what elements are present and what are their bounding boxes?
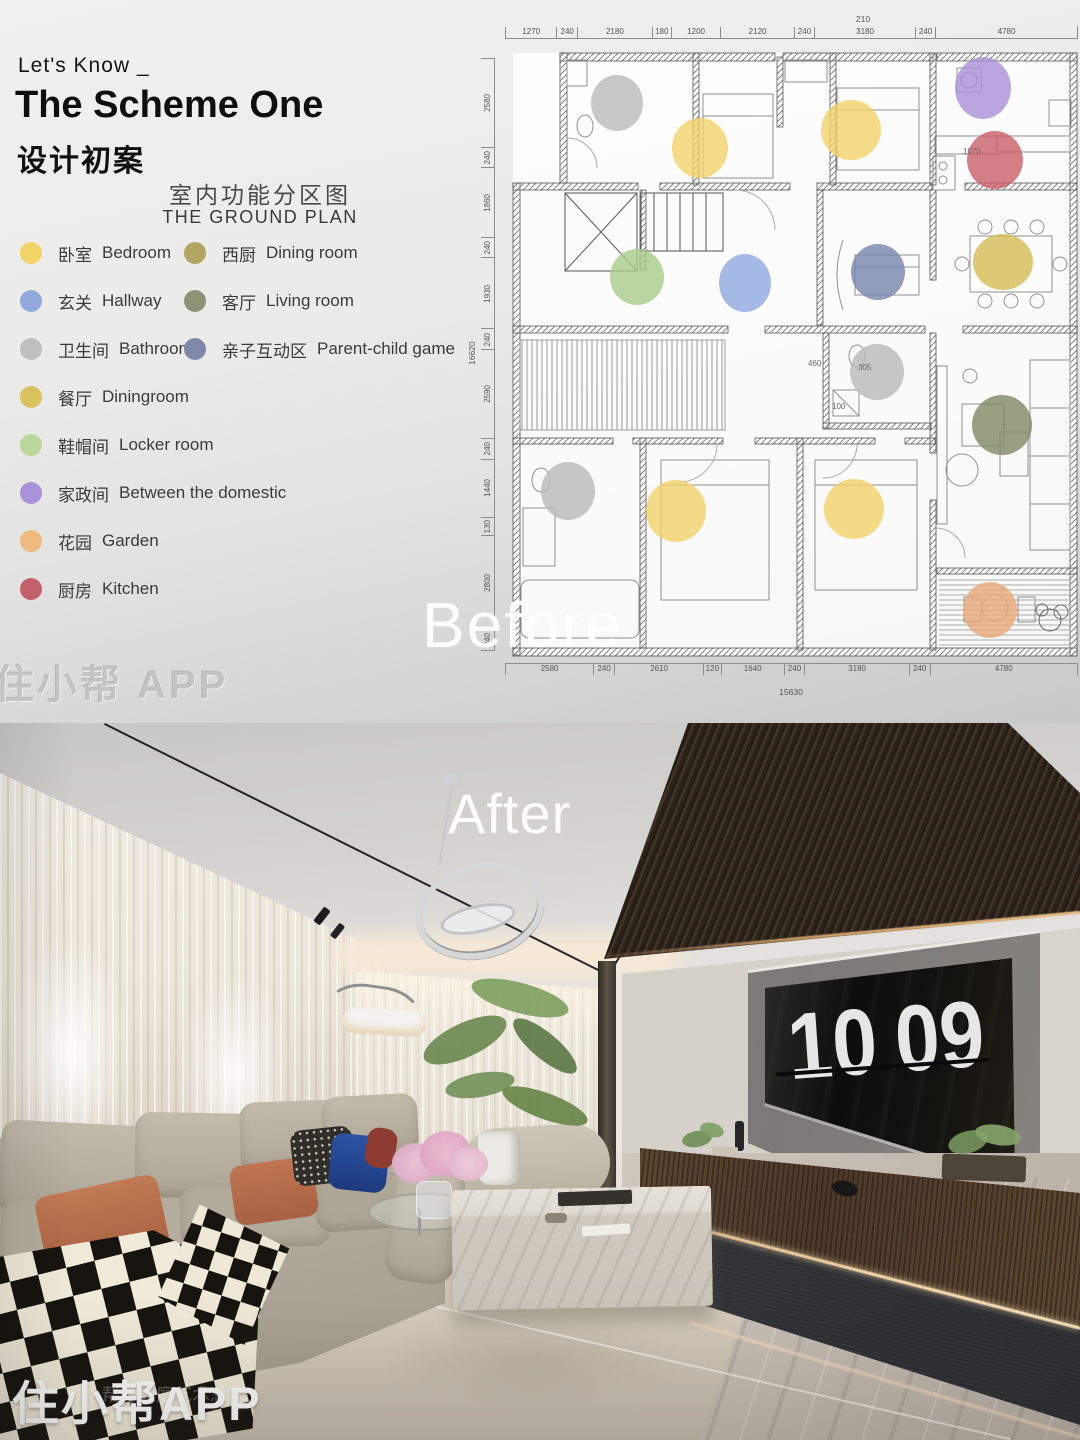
page-subtitle-cn: 设计初案 — [17, 136, 145, 180]
room-marker-living-room — [972, 395, 1032, 455]
plan-annotation: 460 — [808, 359, 821, 368]
kicker-text: Let's Know _ — [18, 54, 150, 78]
legend-color-dot — [20, 530, 42, 552]
legend-label-en: Kitchen — [102, 579, 159, 599]
legend-column-right: 西厨Dining room客厅Living room亲子互动区Parent-ch… — [184, 242, 455, 386]
legend-label-cn: 花园 — [58, 529, 92, 554]
room-marker-bathroom-middle — [850, 344, 904, 400]
planter-box — [942, 1154, 1027, 1183]
after-overlay-label: After — [448, 781, 571, 846]
legend-color-dot — [20, 578, 42, 600]
plan-annotation: 1070 — [963, 147, 981, 156]
legend-color-dot — [184, 242, 206, 264]
room-marker-bedroom-1 — [672, 118, 728, 178]
legend-color-dot — [20, 242, 42, 264]
flip-clock: 1009 — [778, 980, 995, 1102]
legend-item: 家政间Between the domestic — [20, 482, 286, 504]
legend-label-cn: 玄关 — [58, 289, 92, 314]
plan-annotation: 100 — [832, 402, 845, 411]
legend-label-cn: 卧室 — [58, 241, 92, 266]
flower-vase — [416, 1181, 452, 1219]
legend-label-en: Dining room — [266, 243, 358, 263]
legend-item: 鞋帽间Locker room — [20, 434, 286, 456]
clock-hours: 10 — [784, 989, 880, 1100]
flower-bouquet — [448, 1147, 488, 1181]
legend-item: 亲子互动区Parent-child game — [184, 338, 455, 360]
legend-label-cn: 家政间 — [58, 481, 109, 506]
legend-label-en: Parent-child game — [317, 339, 455, 359]
legend-item: 西厨Dining room — [184, 242, 455, 264]
plan-annotation: 305 — [858, 363, 871, 372]
legend-label-en: Between the domestic — [119, 483, 286, 503]
legend-item: 厨房Kitchen — [20, 578, 286, 600]
table-tray — [558, 1190, 632, 1207]
table-decor — [545, 1213, 567, 1223]
room-marker-garden — [963, 582, 1017, 638]
legend-color-dot — [20, 386, 42, 408]
legend-item: 客厅Living room — [184, 290, 455, 312]
legend-label-en: Hallway — [102, 291, 162, 311]
legend-label-en: Living room — [266, 291, 354, 311]
shelf-tray — [712, 1147, 738, 1153]
legend-label-cn: 厨房 — [58, 577, 92, 602]
page-title: The Scheme One — [15, 84, 323, 127]
plan-title-cn: 室内功能分区图 — [120, 176, 400, 210]
watermark-after: 住小帮APP — [12, 1365, 262, 1434]
design-poster: Let's Know _ The Scheme One 设计初案 室内功能分区图… — [0, 0, 1080, 1440]
clock-minutes: 09 — [891, 981, 987, 1092]
legend-label-en: Bathroom — [119, 339, 193, 359]
plan-title-en: THE GROUND PLAN — [120, 207, 400, 228]
room-marker-hallway — [719, 254, 771, 312]
legend-label-en: Bedroom — [102, 243, 171, 263]
room-marker-domestic-room — [955, 57, 1011, 119]
legend-label-cn: 卫生间 — [58, 337, 109, 362]
room-marker-kitchen — [967, 131, 1023, 189]
room-marker-parent-child — [851, 244, 905, 300]
room-marker-locker-room — [610, 249, 664, 305]
legend-label-en: Diningroom — [102, 387, 189, 407]
room-marker-bathroom-topleft — [591, 75, 643, 131]
legend-color-dot — [184, 338, 206, 360]
legend-color-dot — [20, 290, 42, 312]
after-section: 1009 — [0, 723, 1080, 1440]
legend-label-cn: 鞋帽间 — [58, 433, 109, 458]
legend-color-dot — [20, 338, 42, 360]
room-marker-bedroom-2 — [821, 100, 881, 160]
legend-label-en: Locker room — [119, 435, 213, 455]
legend-label-cn: 客厅 — [222, 289, 256, 314]
legend-item: 花园Garden — [20, 530, 286, 552]
room-marker-bedroom-4 — [824, 479, 884, 539]
room-marker-bedroom-3 — [646, 480, 706, 542]
legend-color-dot — [184, 290, 206, 312]
legend-label-cn: 西厨 — [222, 241, 256, 266]
legend-label-en: Garden — [102, 531, 159, 551]
room-marker-dining-west — [973, 234, 1033, 290]
legend-color-dot — [20, 434, 42, 456]
lamp-shade — [341, 1007, 426, 1037]
watermark-before: 住小帮 APP — [0, 652, 228, 710]
legend-label-cn: 亲子互动区 — [222, 337, 307, 362]
legend-item: 餐厅Diningroom — [20, 386, 286, 408]
legend-color-dot — [20, 482, 42, 504]
before-overlay-label: Before — [422, 588, 623, 662]
room-marker-bathroom-bottom — [541, 462, 595, 520]
before-section: Let's Know _ The Scheme One 设计初案 室内功能分区图… — [0, 0, 1080, 723]
legend-label-cn: 餐厅 — [58, 385, 92, 410]
